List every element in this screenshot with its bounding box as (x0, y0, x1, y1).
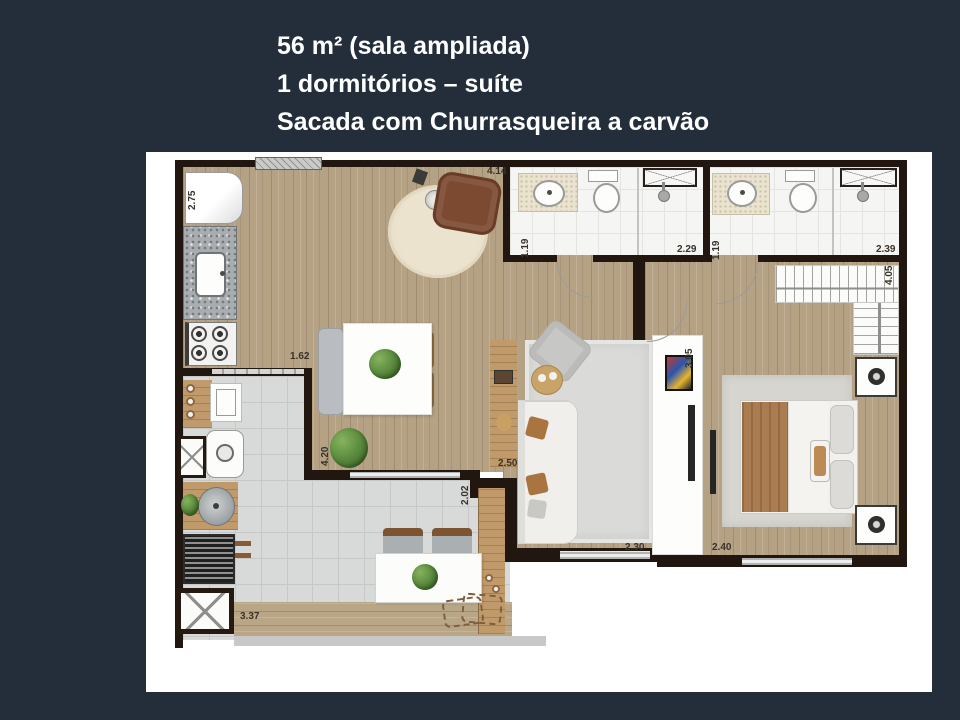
floorplan-card: 2.75 4.14 1.19 2.29 1.19 2.39 4.05 3.05 … (146, 152, 932, 692)
cabinet-jar-2 (186, 397, 195, 406)
balcony-table-plant (412, 564, 438, 590)
bath1-toilet-bowl (593, 183, 620, 213)
dim-living-width: 2.50 (498, 458, 517, 469)
coffee-table-dish-1 (538, 374, 546, 382)
title-line-bedrooms: 1 dormitórios – suíte (277, 65, 709, 103)
balcony-dashed-chair-2 (461, 592, 503, 625)
washer-door (216, 444, 234, 462)
service-oven-door (216, 389, 236, 416)
duct-shaft-2 (176, 588, 234, 634)
laundry-plant (181, 494, 199, 516)
dining-bench (318, 328, 344, 415)
dim-kitchen-depth: 2.75 (187, 191, 198, 210)
dim-living-window: 2.30 (625, 542, 644, 553)
wall-balcony-step (304, 368, 312, 480)
balcony-chair-1 (383, 528, 423, 556)
living-tv (688, 405, 695, 481)
burner-3 (191, 345, 207, 361)
bath1-toilet-tank (588, 170, 618, 182)
sideboard-frame (494, 370, 513, 384)
burner-1 (191, 326, 207, 342)
dim-living-top: 4.14 (487, 166, 506, 177)
dim-balcony-width: 3.37 (240, 611, 259, 622)
closet-top (775, 265, 899, 303)
closet-right (853, 302, 899, 355)
bedroom-tv (710, 430, 716, 494)
grill-handle-1 (235, 541, 251, 546)
window-dining-balcony (350, 472, 460, 478)
dim-bedroom-depth: 4.05 (884, 266, 895, 285)
bath2-toilet-tank (785, 170, 815, 182)
slide-title: 56 m² (sala ampliada) 1 dormitórios – su… (277, 27, 709, 141)
balcony-chair-2 (432, 528, 472, 556)
bath2-shower-head (857, 190, 869, 202)
bath1-shower-arm (662, 182, 665, 190)
balcony-edge (234, 636, 546, 646)
wall-bath-bottom-3 (758, 255, 899, 262)
bed-pillow-1 (830, 405, 854, 454)
bath2-faucet (740, 190, 745, 195)
cabinet-jar-3 (186, 410, 195, 419)
dining-centerpiece-plant (369, 349, 401, 379)
bath1-shower-box (643, 168, 697, 187)
bath2-shower-box (840, 168, 897, 187)
sideboard (490, 340, 517, 467)
sofa-pillow-3 (527, 499, 547, 519)
duct-shaft-1 (178, 436, 206, 478)
kitchen-window-hatch (255, 157, 322, 170)
nightstand-lamp-1 (868, 368, 885, 385)
glass-door-service (212, 369, 304, 374)
burner-4 (212, 345, 228, 361)
bed-tray-runner (814, 446, 826, 476)
floor-plant (330, 428, 368, 468)
slide: { "title": { "line1": "56 m² (sala ampli… (0, 0, 960, 720)
grill-handle-2 (235, 553, 251, 558)
burner-2 (212, 326, 228, 342)
window-bedroom (742, 558, 852, 565)
kitchen-faucet (220, 271, 225, 276)
wall-hall-divider (633, 262, 645, 340)
laundry-drain (213, 503, 219, 509)
dim-bath2-depth: 1.19 (711, 241, 722, 260)
wall-bath-bottom-2 (593, 255, 712, 262)
dim-bedroom-width: 2.40 (712, 542, 731, 553)
cabinet-jar-1 (186, 384, 195, 393)
balcony-knob-1 (485, 574, 493, 582)
balcony-knob-2 (492, 585, 500, 593)
bed-blanket (742, 402, 788, 512)
bath1-faucet (547, 190, 552, 195)
wall-bath1-left (503, 167, 510, 262)
bath2-shower-arm (861, 182, 864, 190)
dim-bath1-width: 2.29 (677, 244, 696, 255)
dim-bath2-width: 2.39 (876, 244, 895, 255)
bath1-shower-partition (637, 168, 639, 255)
bath2-toilet-bowl (789, 183, 817, 213)
bed-pillow-2 (830, 460, 854, 509)
sofa-pillow-2 (525, 472, 549, 496)
nightstand-lamp-2 (868, 516, 885, 533)
wall-bath-divider (703, 167, 710, 255)
dim-bath1-depth: 1.19 (520, 239, 531, 258)
title-line-balcony: Sacada com Churrasqueira a carvão (277, 103, 709, 141)
bath1-shower-head (658, 190, 670, 202)
dim-balcony-depth: 4.20 (320, 447, 331, 466)
coffee-table (531, 365, 563, 395)
reading-armchair (431, 170, 504, 237)
sideboard-bowl (496, 414, 512, 431)
charcoal-grill (183, 534, 235, 584)
coffee-table-dish-2 (549, 372, 557, 380)
bath2-shower-partition (832, 168, 834, 255)
wall-right (899, 160, 907, 565)
title-line-area: 56 m² (sala ampliada) (277, 27, 709, 65)
dim-living-depth: 3.05 (684, 349, 695, 368)
dim-kitchen-opening: 1.62 (290, 351, 309, 362)
wall-left (175, 160, 183, 648)
dim-balcony-pass: 2.02 (460, 486, 471, 505)
